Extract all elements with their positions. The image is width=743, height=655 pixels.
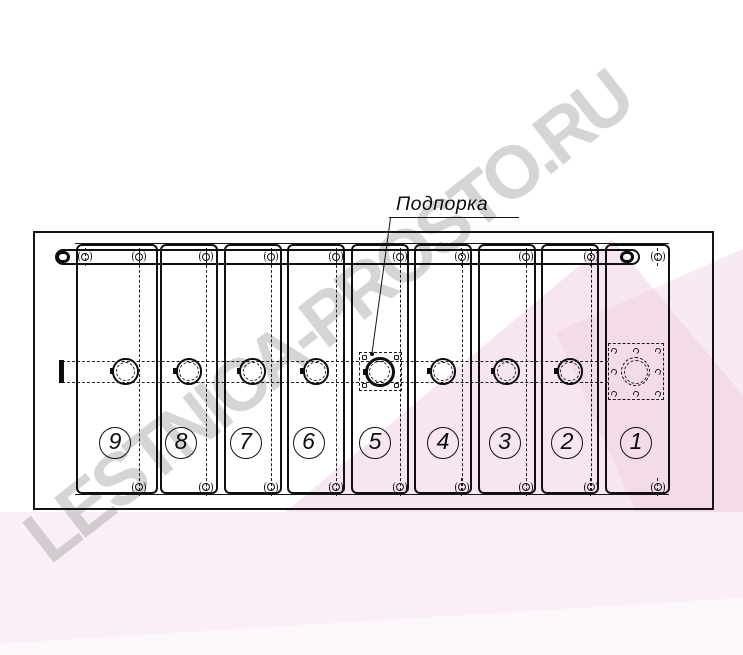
bolt-mark: [461, 478, 462, 496]
tread-pivot-circle-4: [430, 358, 456, 384]
panel-number-badge-4: 4: [427, 427, 459, 459]
panel-number: 9: [109, 428, 122, 455]
bolt-mark: [657, 478, 658, 496]
hidden-bar-bottom-dashed-line: [62, 382, 608, 383]
rail-left-end-cap: [56, 251, 70, 263]
tread-pivot-circle-2: [557, 358, 583, 384]
bolt-mark: [132, 482, 138, 493]
tread-pivot-circle-3: [493, 358, 519, 384]
bolt-mark: [393, 482, 399, 493]
tread-pivot-circle-8: [176, 358, 202, 384]
bolt-mark: [140, 482, 146, 493]
panel-number-badge-1: 1: [620, 427, 652, 459]
bolt-mark: [199, 482, 205, 493]
bolt-mark: [584, 482, 590, 493]
rail-bolt-bottom: [394, 481, 406, 493]
panel-number-badge-6: 6: [293, 427, 325, 459]
panel-number-badge-5: 5: [359, 427, 391, 459]
rail-bolt-bottom: [456, 481, 468, 493]
bolt-mark: [463, 482, 469, 493]
panel-number-badge-9: 9: [99, 427, 131, 459]
panel-centerline-8: [206, 250, 207, 491]
panel-centerline-9: [139, 250, 140, 491]
rail-bolt-bottom: [652, 481, 664, 493]
support-corner-mark: [362, 383, 367, 388]
panel-number: 1: [630, 428, 643, 455]
support-corner-mark: [394, 355, 399, 360]
panel-number: 2: [561, 428, 574, 455]
bolt-mark: [527, 482, 533, 493]
panel-number: 5: [369, 428, 382, 455]
rail-bolt-bottom: [330, 481, 342, 493]
bolt-mark: [264, 482, 270, 493]
rail-right-end-cap: [620, 251, 634, 263]
tread-pivot-circle-7: [239, 358, 265, 384]
panel-centerline-7: [271, 250, 272, 491]
mounting-plate-hole-circle: [621, 357, 650, 386]
bolt-mark: [659, 482, 665, 493]
bolt-mark: [657, 248, 658, 266]
bolt-mark: [651, 251, 657, 262]
bolt-mark: [651, 482, 657, 493]
bolt-mark: [337, 482, 343, 493]
bolt-mark: [272, 482, 278, 493]
callout-leader-endpoint: [370, 352, 374, 356]
hidden-bar-left-end-cap: [59, 360, 64, 383]
panel-number: 7: [239, 428, 252, 455]
hidden-bar-top-dashed-line: [62, 361, 608, 362]
callout-underline: [389, 217, 519, 218]
panel-number-badge-8: 8: [165, 427, 197, 459]
bolt-mark: [592, 482, 598, 493]
bolt-mark: [659, 251, 665, 262]
bolt-mark: [455, 482, 461, 493]
assembly-bottom-edge: [75, 494, 669, 495]
callout-label: Подпорка: [396, 193, 488, 216]
panel-centerline-2: [591, 250, 592, 491]
top-rail: [55, 249, 640, 266]
bolt-mark: [207, 482, 213, 493]
rail-bolt-bottom: [585, 481, 597, 493]
rail-bolt-bottom: [265, 481, 277, 493]
rail-bolt-bottom: [133, 481, 145, 493]
tread-pivot-circle-9: [112, 358, 138, 384]
bolt-mark: [590, 478, 591, 496]
support-plate-outline: [359, 352, 402, 392]
panel-number: 6: [302, 428, 315, 455]
panel-centerline-6: [336, 250, 337, 491]
panel-number: 4: [437, 428, 450, 455]
bolt-mark: [401, 482, 407, 493]
panel-centerline-4: [462, 250, 463, 491]
panel-number-badge-2: 2: [551, 427, 583, 459]
bolt-mark: [519, 482, 525, 493]
technical-drawing-canvas: LESTNICA-PROSTO.RU 987654321 Подпорка: [0, 0, 743, 655]
rail-bolt-bottom: [520, 481, 532, 493]
support-corner-mark: [394, 383, 399, 388]
panel-number: 3: [498, 428, 511, 455]
bolt-mark: [329, 482, 335, 493]
panel-number: 8: [175, 428, 188, 455]
tread-pivot-circle-6: [303, 358, 329, 384]
panel-number-badge-3: 3: [489, 427, 521, 459]
rail-bolt-top: [652, 251, 664, 263]
support-corner-mark: [362, 355, 367, 360]
panel-centerline-3: [526, 250, 527, 491]
panel-number-badge-7: 7: [230, 427, 262, 459]
rail-bolt-bottom: [200, 481, 212, 493]
